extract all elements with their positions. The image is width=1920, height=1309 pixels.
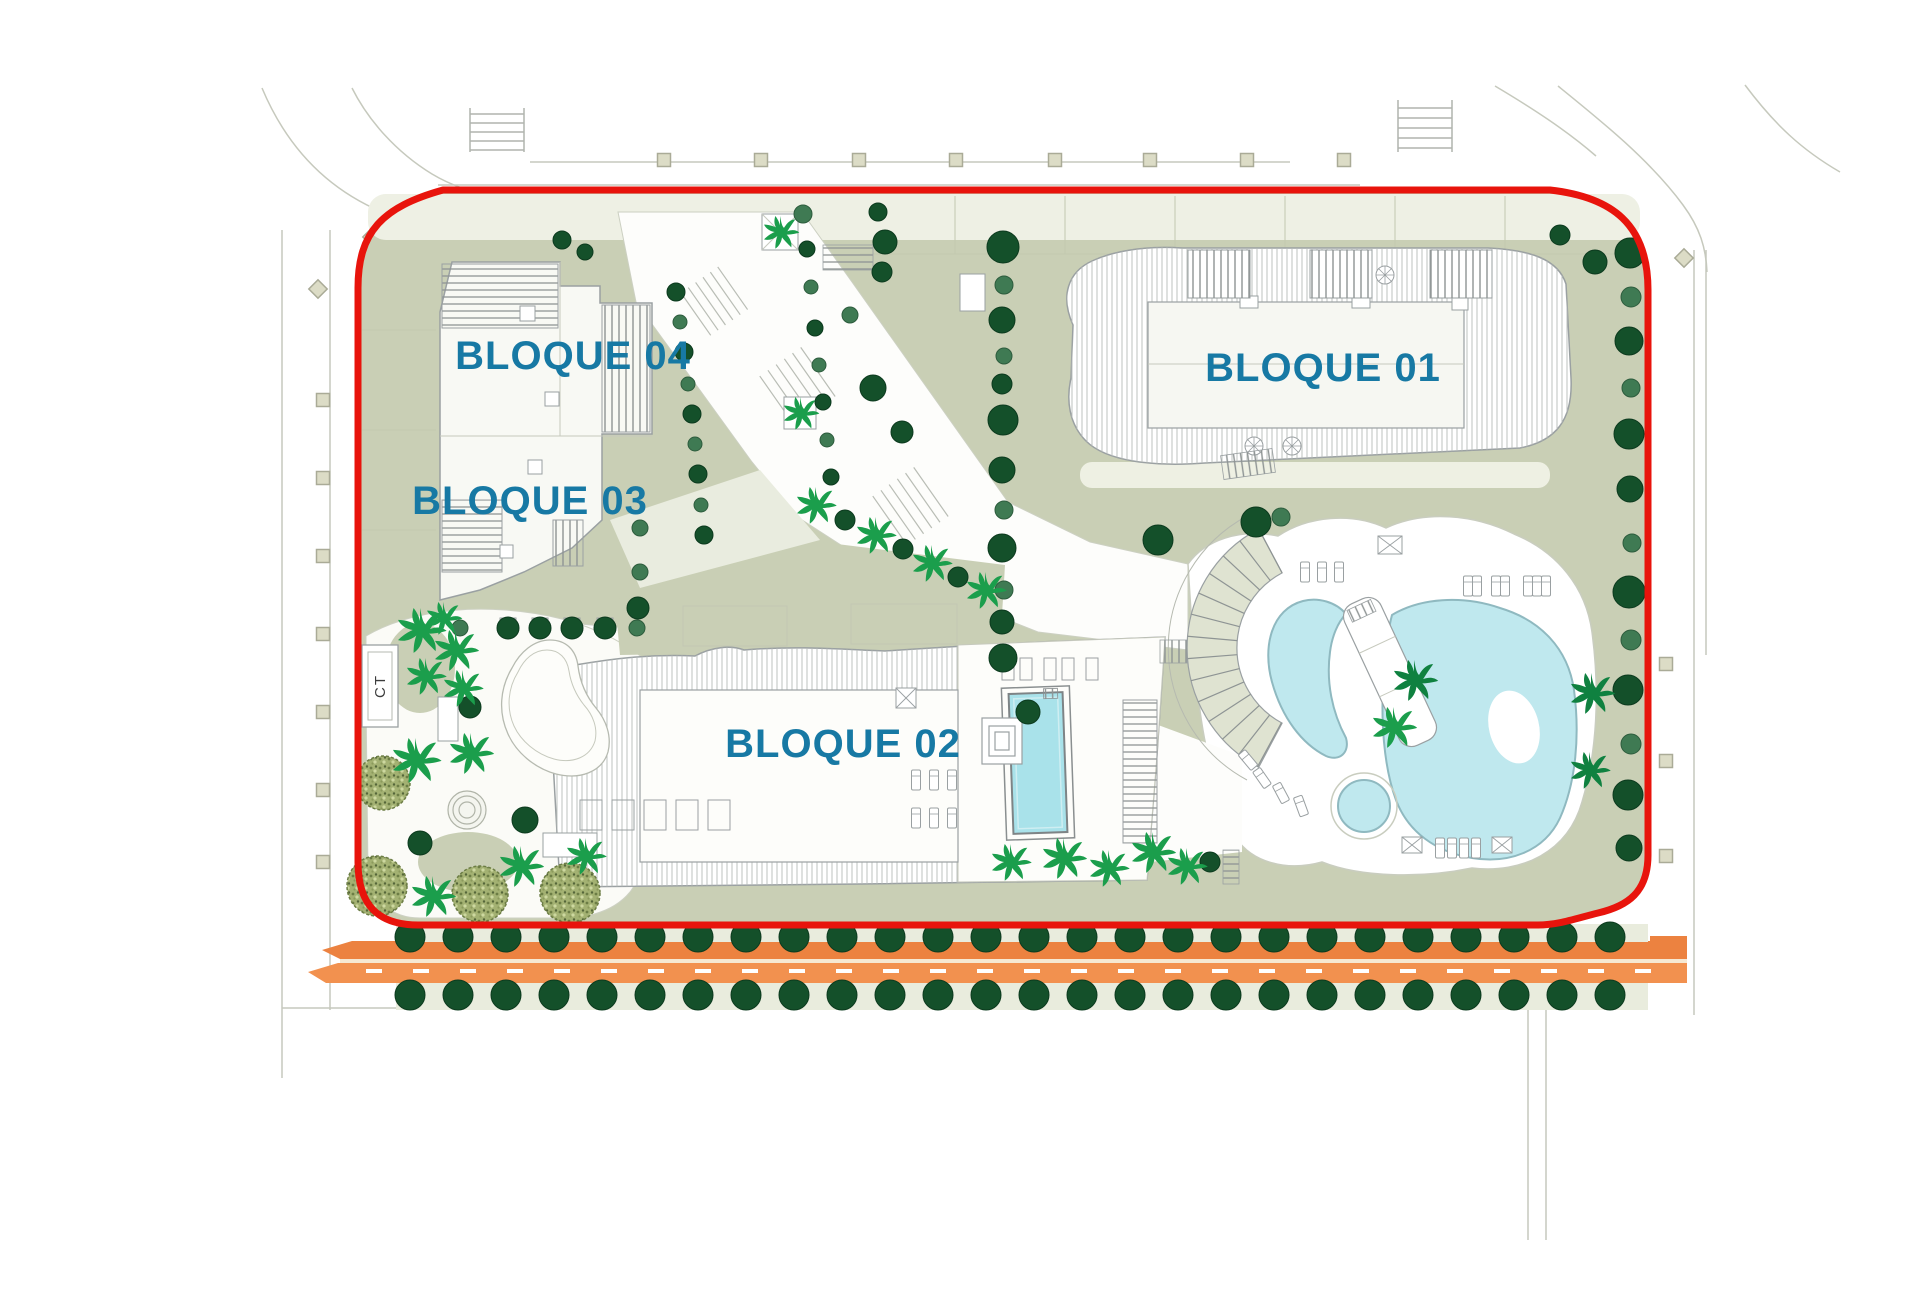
bollard-square [1660,658,1673,671]
street-tree-icon [923,980,953,1010]
bollard-square [317,550,330,563]
tree-icon [1615,327,1643,355]
street-tree-icon [1163,980,1193,1010]
sun-lounger-icon [948,770,957,790]
tree-icon [689,465,707,483]
sun-lounger-icon [948,808,957,828]
tree-icon [695,526,713,544]
sun-lounger-icon [1335,562,1344,582]
sun-lounger-icon [930,808,939,828]
tree-icon [1622,379,1640,397]
street-stair-east [1398,100,1452,152]
bollard-square [317,628,330,641]
tree-icon [1613,780,1643,810]
tree-icon [667,283,685,301]
street-tree-icon [1403,980,1433,1010]
bollard-square [317,472,330,485]
road-dash [1118,969,1134,973]
road-dash [1400,969,1416,973]
street-tree-icon [1307,980,1337,1010]
bollard-square [317,856,330,869]
tree-icon [988,405,1018,435]
road-dash [695,969,711,973]
bollard-square [317,706,330,719]
road-dash [507,969,523,973]
ct-transformer: CT [362,645,398,727]
tree-icon [561,617,583,639]
road-curve-top-right-inner [1495,86,1596,156]
tree-icon [948,567,968,587]
tree-icon [452,620,468,636]
road-curve-top-left-inner [352,88,496,197]
tree-icon [594,617,616,639]
tree-icon [860,375,886,401]
bollard-square [1049,154,1062,167]
service-box-icon [1402,837,1422,853]
bollard-square [950,154,963,167]
sun-lounger-icon [1472,838,1481,858]
street-tree-icon [779,980,809,1010]
tree-icon [577,244,593,260]
street-tree-icon [1355,980,1385,1010]
b0304-stair-hatch-top [442,264,558,328]
tree-icon [987,231,1019,263]
tree-icon [1143,525,1173,555]
crosswalk-diamond [309,280,327,298]
mottled-tree-icon [452,866,508,922]
road-dash [1494,969,1510,973]
street-tree-icon [587,980,617,1010]
tree-icon [891,421,913,443]
entrance-stairs [823,245,873,270]
road-dash [1588,969,1604,973]
tree-icon [995,276,1013,294]
street-tree-icon [635,980,665,1010]
tree-icon [989,644,1017,672]
tree-icon [553,231,571,249]
b02-solarium-structure [982,718,1022,764]
label-bloque-01: BLOQUE 01 [1205,346,1441,390]
b02-roof-patio-1 [683,606,787,646]
street-tree-icon [539,980,569,1010]
b0304-stair-hatch-mid [553,520,583,566]
bollard-square [317,394,330,407]
service-box-icon [1378,536,1402,554]
tree-icon [1241,507,1271,537]
street-tree-icon [1499,980,1529,1010]
sun-lounger-icon [1533,576,1542,596]
tree-icon [683,405,701,423]
spiral-stair-icon [1376,266,1394,284]
bollard-square [1338,154,1351,167]
bollard-square [1660,850,1673,863]
tree-icon [1621,630,1641,650]
tree-icon [632,564,648,580]
sun-lounger-icon [1301,562,1310,582]
tree-icon [629,620,645,636]
tree-icon [497,617,519,639]
road-dash [1259,969,1275,973]
bollard-square [755,154,768,167]
street-tree-icon [731,980,761,1010]
sun-lounger-icon [1473,576,1482,596]
bollard-square [853,154,866,167]
tree-icon [799,241,815,257]
tree-icon [1200,852,1220,872]
road-dash [742,969,758,973]
b02-ramp-hatch [1123,700,1157,843]
b01-lower-strip [1080,462,1550,488]
tree-icon [694,498,708,512]
sun-lounger-icon [930,770,939,790]
service-box-icon [896,688,916,708]
tree-icon [1623,534,1641,552]
sun-lounger-icon [1464,576,1473,596]
sun-lounger-icon [1492,576,1501,596]
ct-label: CT [372,674,389,698]
sun-lounger-icon [1542,576,1551,596]
road-dash [648,969,664,973]
b01-stairbox-3 [1430,250,1492,298]
street-tree-icon [491,980,521,1010]
road-dash [883,969,899,973]
street-tree-icon [683,980,713,1010]
sun-lounger-icon [1501,576,1510,596]
street-tree-icon [1595,922,1625,952]
bollard-square [1241,154,1254,167]
bollard-square [1144,154,1157,167]
street-tree-icon [1115,980,1145,1010]
site-plan-page: CT BLOQUE 04 BLOQUE 03 BLOQUE 01 BLOQUE … [0,0,1920,1309]
street-stair-west [470,108,524,152]
tree-icon [512,807,538,833]
tree-icon [794,205,812,223]
tree-icon [835,510,855,530]
street-tree-icon [1211,980,1241,1010]
bollard-square [658,154,671,167]
street-tree-icon [1547,980,1577,1010]
road-dash [413,969,429,973]
garden-fountain [448,791,486,829]
road-band-gap [340,959,1687,963]
tree-icon [893,539,913,559]
street-tree-icon [1067,980,1097,1010]
tree-icon [842,307,858,323]
tree-icon [812,358,826,372]
street-tree-icon [1019,980,1049,1010]
street-tree-icon [1259,980,1289,1010]
tree-icon [869,203,887,221]
tree-icon [1272,508,1290,526]
sun-lounger-icon [912,808,921,828]
tree-icon [1550,225,1570,245]
street-tree-icon [827,980,857,1010]
tree-icon [1614,419,1644,449]
tree-icon [873,230,897,254]
garden-pergola-1 [438,697,458,741]
label-bloque-02: BLOQUE 02 [725,722,961,766]
road-dash [1353,969,1369,973]
bollard-square [317,784,330,797]
b01-stairbox-1 [1188,250,1250,298]
tree-icon [820,433,834,447]
road-dash [836,969,852,973]
tree-icon [1016,700,1040,724]
service-box-icon [1492,837,1512,853]
tree-icon [996,348,1012,364]
label-bloque-04: BLOQUE 04 [455,334,691,378]
sun-lounger-icon [1436,838,1445,858]
tree-icon [1621,287,1641,307]
tree-icon [815,394,831,410]
deck-stairs-small [1160,640,1187,663]
b02-core [640,690,958,862]
sun-lounger-icon [1318,562,1327,582]
tree-icon [681,377,695,391]
b01-stairbox-2 [1310,250,1372,298]
sun-lounger-icon [1460,838,1469,858]
bollard-square [1660,755,1673,768]
tree-icon [995,501,1013,519]
tree-icon [1621,734,1641,754]
street-tree-icon [443,980,473,1010]
tree-icon [804,280,818,294]
road-dash [1024,969,1040,973]
road-dash [789,969,805,973]
south-stairs-small [1223,850,1239,884]
road-dash [1541,969,1557,973]
sun-lounger-icon [1448,838,1457,858]
sun-lounger-icon [912,770,921,790]
tree-icon [988,534,1016,562]
road-dash [1447,969,1463,973]
road-dash [1306,969,1322,973]
tree-icon [989,307,1015,333]
tree-icon [688,437,702,451]
road-dash [554,969,570,973]
tree-icon [990,610,1014,634]
tree-icon [872,262,892,282]
tree-icon [673,315,687,329]
street-tree-icon [1451,980,1481,1010]
road-dash [1165,969,1181,973]
road-dash [977,969,993,973]
road-dash [1635,969,1651,973]
crosswalk-diamond [1675,249,1693,267]
kiosk-rect [960,274,985,311]
road-dash [366,969,382,973]
tree-icon [992,374,1012,394]
road-dash [1212,969,1228,973]
tree-icon [1613,576,1645,608]
road-curve-far-top-right [1745,85,1840,172]
street-tree-icon [395,980,425,1010]
tree-icon [823,469,839,485]
tree-icon [807,320,823,336]
mottled-tree-icon [540,863,600,923]
street-tree-icon [875,980,905,1010]
tree-icon [989,457,1015,483]
road-dash [930,969,946,973]
tree-icon [1583,250,1607,274]
b02-roof-patio-2 [851,604,957,644]
tree-icon [1616,835,1642,861]
tree-icon [529,617,551,639]
sun-lounger-icon [1524,576,1533,596]
tree-icon [408,831,432,855]
street-tree-icon [971,980,1001,1010]
tree-icon [1613,675,1643,705]
pool-round [1338,780,1390,832]
spiral-stair-icon [1283,437,1301,455]
road-dash [460,969,476,973]
road-dash [601,969,617,973]
road-dash [1071,969,1087,973]
tree-icon [1617,476,1643,502]
tree-icon [627,597,649,619]
label-bloque-03: BLOQUE 03 [412,479,648,523]
street-tree-icon [1595,980,1625,1010]
site-plan-drawing: CT BLOQUE 04 BLOQUE 03 BLOQUE 01 BLOQUE … [0,0,1920,1309]
